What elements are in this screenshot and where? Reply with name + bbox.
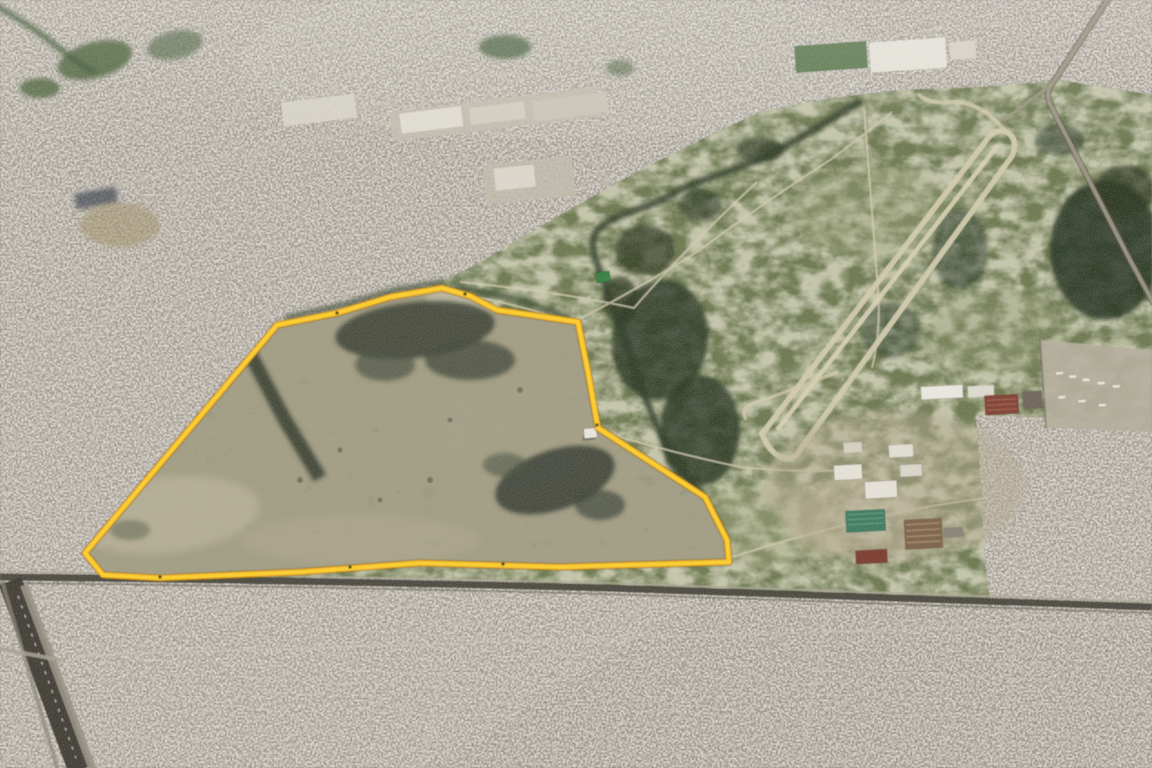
atmosphere-haze xyxy=(0,0,1152,150)
satellite-map-image xyxy=(0,0,1152,768)
aerial-photo xyxy=(0,0,1152,768)
